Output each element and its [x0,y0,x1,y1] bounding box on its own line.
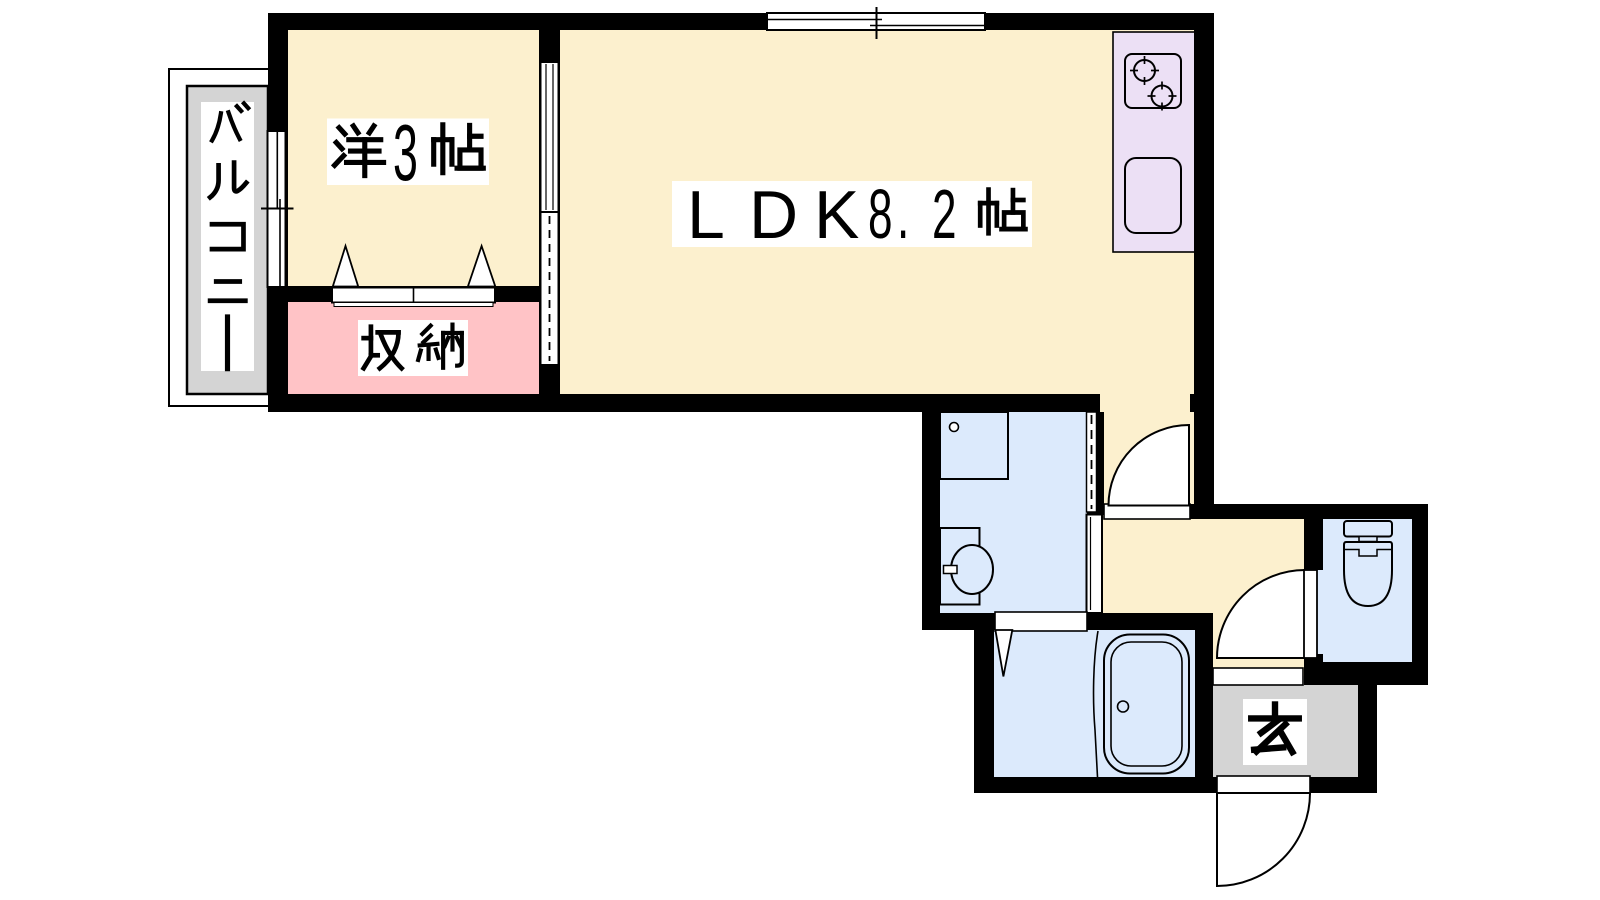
svg-text:K: K [814,177,859,253]
svg-text:3: 3 [393,107,418,197]
svg-text:.: . [897,176,909,254]
svg-text:8: 8 [868,176,893,254]
svg-text:L: L [687,177,725,253]
svg-text:D: D [749,177,798,253]
svg-text:2: 2 [932,176,957,254]
